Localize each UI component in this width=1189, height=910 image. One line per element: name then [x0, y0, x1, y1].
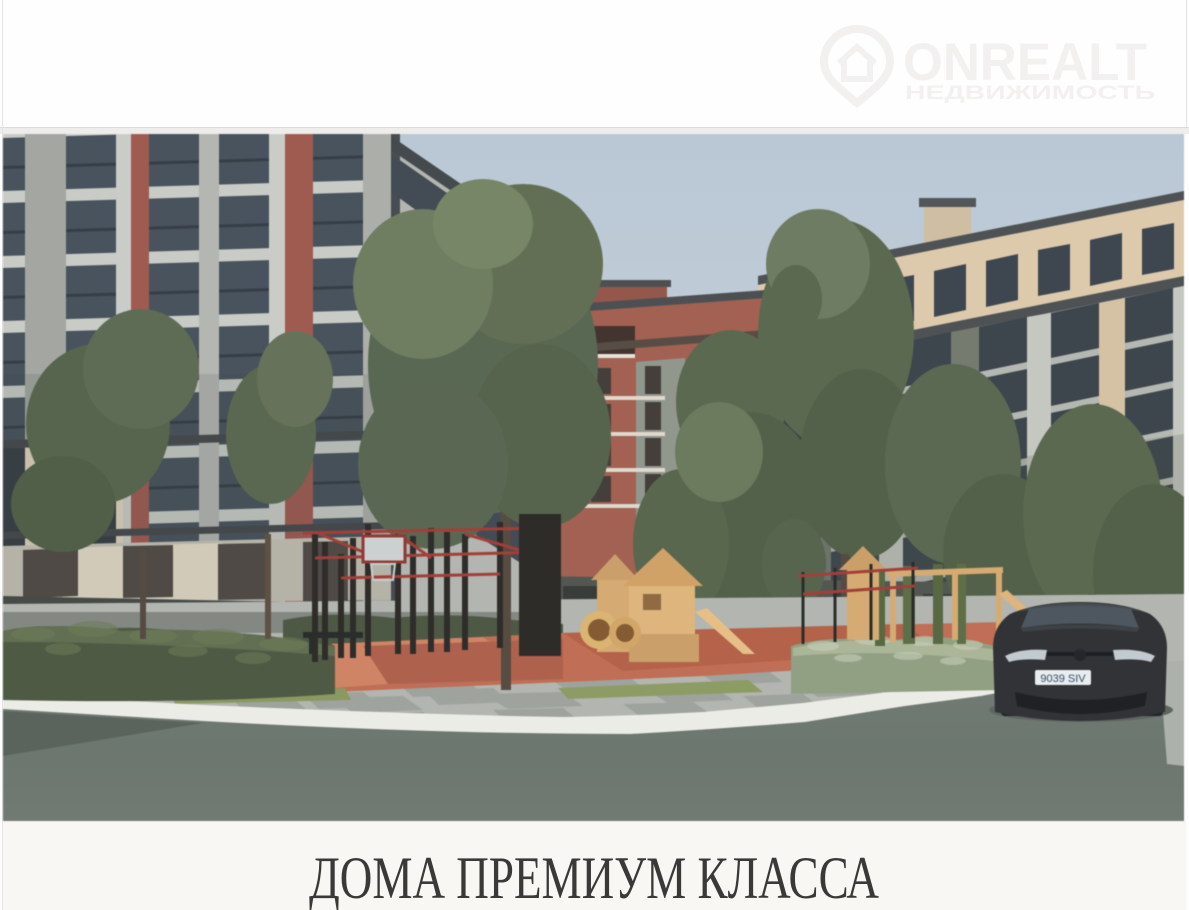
svg-text:ДОМА ПРЕМИУМ КЛАССА: ДОМА ПРЕМИУМ КЛАССА — [309, 845, 879, 910]
svg-text:НЕДВИЖИМОСТЬ: НЕДВИЖИМОСТЬ — [905, 83, 1155, 104]
